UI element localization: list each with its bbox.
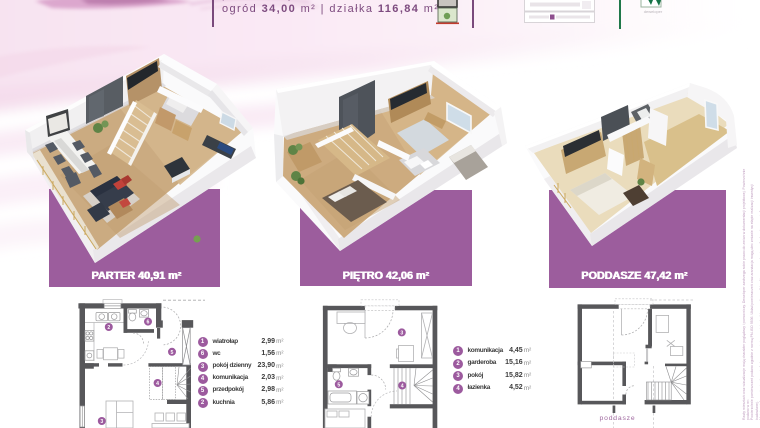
svg-text:3: 3	[400, 330, 403, 336]
svg-text:4: 4	[156, 381, 159, 387]
svg-text:4: 4	[401, 384, 404, 390]
svg-text:5: 5	[171, 350, 174, 356]
svg-text:6: 6	[147, 320, 150, 326]
svg-text:3: 3	[100, 419, 103, 425]
svg-text:2: 2	[107, 325, 110, 331]
svg-text:5: 5	[337, 382, 340, 388]
